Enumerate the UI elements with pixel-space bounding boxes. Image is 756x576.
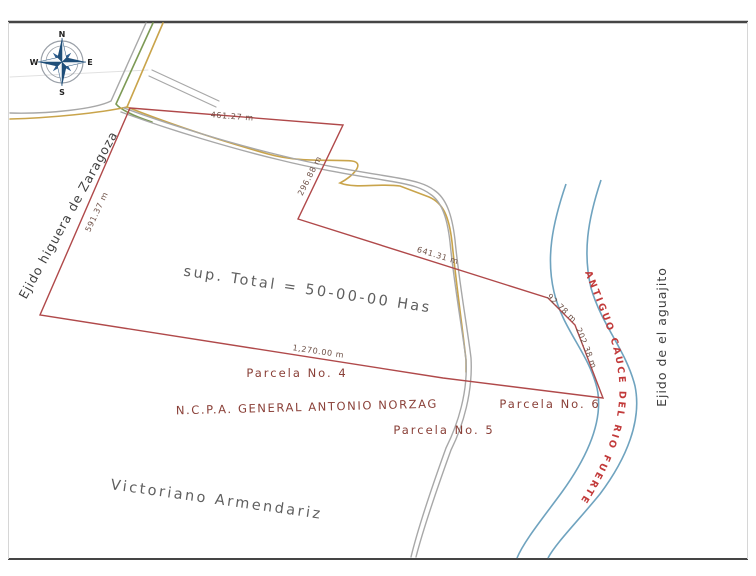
dimension-202: 202.38 m (574, 326, 599, 369)
road-bundle-gray (10, 23, 146, 113)
dimension-92: 92.78 m (545, 292, 578, 324)
east-ejido-label: Ejido de el aguajito (654, 267, 669, 407)
west-ejido-label: Ejido higuera de Zaragoza (16, 128, 121, 301)
parcel-6-label: Parcela No. 6 (499, 397, 600, 411)
road-branch-east-1 (152, 70, 219, 101)
parcel-map-page: N S E W 461.27 m 296.88 m 591.37 m 641.3… (0, 0, 756, 576)
compass-south-label: S (59, 88, 65, 97)
compass-star-light (38, 38, 86, 86)
parcel-4-label: Parcela No. 4 (246, 366, 347, 380)
dimension-296: 296.88 m (296, 155, 324, 198)
compass-rose: N S E W (30, 30, 93, 97)
parcel-map: N S E W 461.27 m 296.88 m 591.37 m 641.3… (0, 0, 756, 576)
south-neighbor-label: Victoriano Armendariz (110, 477, 324, 523)
dimension-461: 461.27 m (210, 110, 254, 122)
road-bundle-green (116, 23, 153, 122)
dimension-591: 591.37 m (84, 190, 110, 233)
dimension-labels: 461.27 m 296.88 m 591.37 m 641.31 m 1,27… (84, 110, 599, 369)
road-branch-east-2 (149, 76, 216, 107)
compass-north-label: N (59, 30, 66, 39)
area-total-label: sup. Total = 50-00-00 Has (182, 264, 432, 317)
river-name-label: ANTIGUO CAUCE DEL RIO FUERTE (577, 269, 627, 506)
roads (10, 23, 471, 557)
compass-east-label: E (87, 58, 92, 67)
road-tan-east (127, 107, 466, 372)
parcel-5-label: Parcela No. 5 (393, 423, 494, 437)
dimension-1270: 1,270.00 m (292, 343, 345, 360)
river-name-text: ANTIGUO CAUCE DEL RIO FUERTE (577, 269, 627, 506)
owner-label: N.C.P.A. GENERAL ANTONIO NORZAG (176, 397, 438, 418)
compass-west-label: W (30, 58, 39, 67)
